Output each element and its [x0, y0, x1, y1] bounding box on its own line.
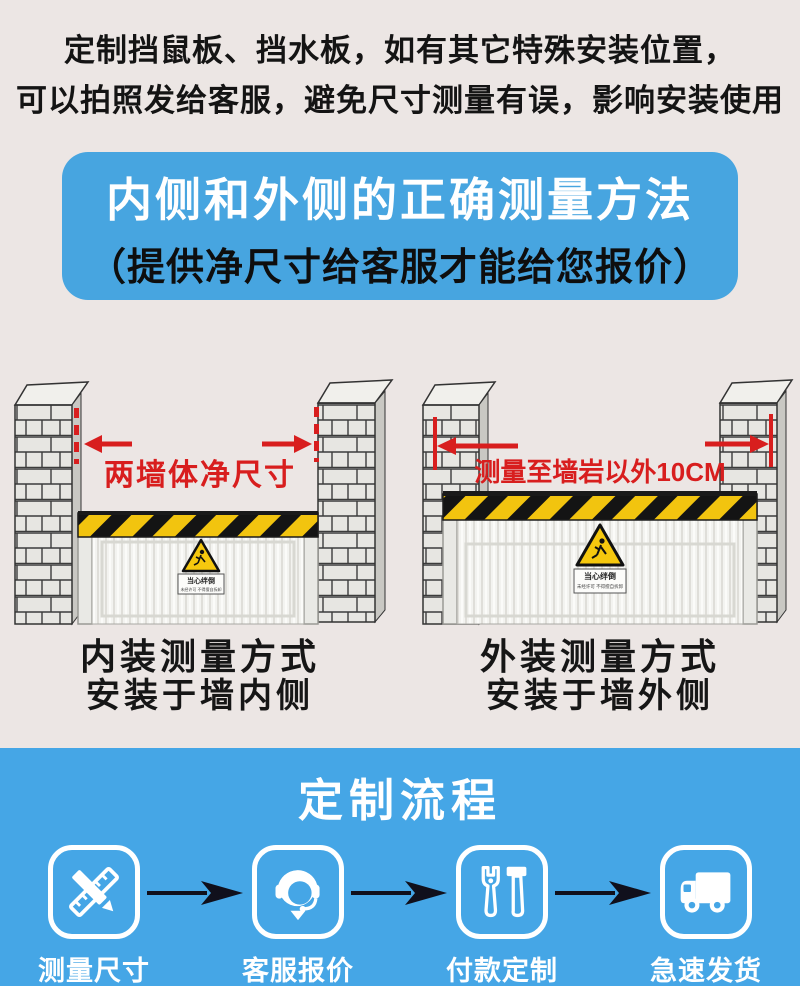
banner-title: 内侧和外侧的正确测量方法 [62, 164, 738, 230]
intro-line-1: 定制挡鼠板、挡水板，如有其它特殊安装位置， [0, 26, 800, 76]
banner-subtitle: （提供净尺寸给客服才能给您报价） [62, 236, 738, 291]
measurement-diagrams: 当心绊倒 未经许可 不得擅自拆卸 两墙体净尺寸 内装测量方式 安装于墙内侧 [0, 372, 800, 710]
customer-service-icon [268, 862, 328, 922]
intro-line-2: 可以拍照发给客服，避免尺寸测量有误，影响安装使用 [0, 76, 800, 126]
measure-label-inner: 两墙体净尺寸 [0, 450, 400, 494]
arrow-right-icon [145, 878, 247, 908]
warning-person-icon [200, 550, 204, 554]
diagram-inner-install: 当心绊倒 未经许可 不得擅自拆卸 两墙体净尺寸 内装测量方式 安装于墙内侧 [0, 372, 400, 710]
brick-pillar-right [318, 380, 392, 622]
sticker-title: 当心绊倒 [584, 571, 616, 581]
flow-step-quote: 客服报价 [247, 845, 349, 986]
caption-outer-position: 安装于墙外侧 [400, 668, 800, 717]
icon-box [456, 845, 548, 939]
icon-box [48, 845, 140, 939]
flow-title: 定制流程 [0, 748, 800, 829]
measure-label-outer: 测量至墙岩以外10CM [400, 452, 800, 489]
ruler-pencil-icon [64, 862, 124, 922]
intro-text: 定制挡鼠板、挡水板，如有其它特殊安装位置， 可以拍照发给客服，避免尺寸测量有误，… [0, 0, 800, 126]
truck-icon [676, 862, 736, 922]
flow-step-label: 付款定制 [446, 949, 558, 986]
sticker-subtext: 未经许可 不得擅自拆卸 [577, 583, 624, 590]
arrow-right-icon [349, 878, 451, 908]
product-infographic: 定制挡鼠板、挡水板，如有其它特殊安装位置， 可以拍照发给客服，避免尺寸测量有误，… [0, 0, 800, 986]
headline-banner: 内侧和外侧的正确测量方法 （提供净尺寸给客服才能给您报价） [62, 152, 738, 300]
sticker-subtext: 未经许可 不得擅自拆卸 [180, 586, 221, 592]
custom-flow-section: 定制流程 测量尺寸 [0, 748, 800, 986]
warning-person-icon [599, 538, 604, 543]
diagram-outer-install: 当心绊倒 未经许可 不得擅自拆卸 测量至墙岩以外10CM 外装测量方式 安装于墙… [400, 372, 800, 710]
flow-step-payment: 付款定制 [451, 845, 553, 986]
caption-inner-position: 安装于墙内侧 [0, 668, 400, 717]
flow-step-label: 客服报价 [242, 949, 354, 986]
flow-step-label: 测量尺寸 [38, 949, 150, 986]
arrow-right-icon [553, 878, 655, 908]
flow-step-shipping: 急速发货 [655, 845, 757, 986]
tools-icon [472, 862, 532, 922]
sticker-title: 当心绊倒 [187, 576, 215, 585]
flow-step-label: 急速发货 [650, 949, 762, 986]
brick-pillar-left [15, 382, 88, 624]
flow-steps: 测量尺寸 [0, 845, 800, 986]
flow-step-measure: 测量尺寸 [43, 845, 145, 986]
icon-box [660, 845, 752, 939]
icon-box [252, 845, 344, 939]
